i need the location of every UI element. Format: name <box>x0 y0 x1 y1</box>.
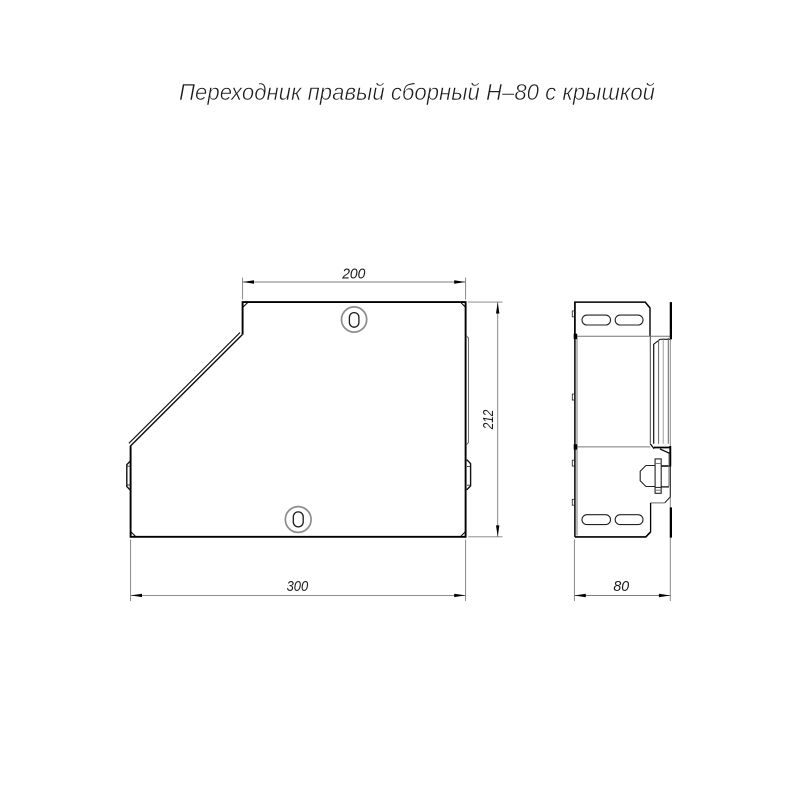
svg-text:200: 200 <box>341 267 365 283</box>
svg-text:300: 300 <box>287 579 309 595</box>
svg-text:212: 212 <box>481 410 497 430</box>
svg-text:80: 80 <box>613 579 629 595</box>
svg-text:Переходник правый сборный Н–80: Переходник правый сборный Н–80 с крышкой <box>179 79 655 105</box>
